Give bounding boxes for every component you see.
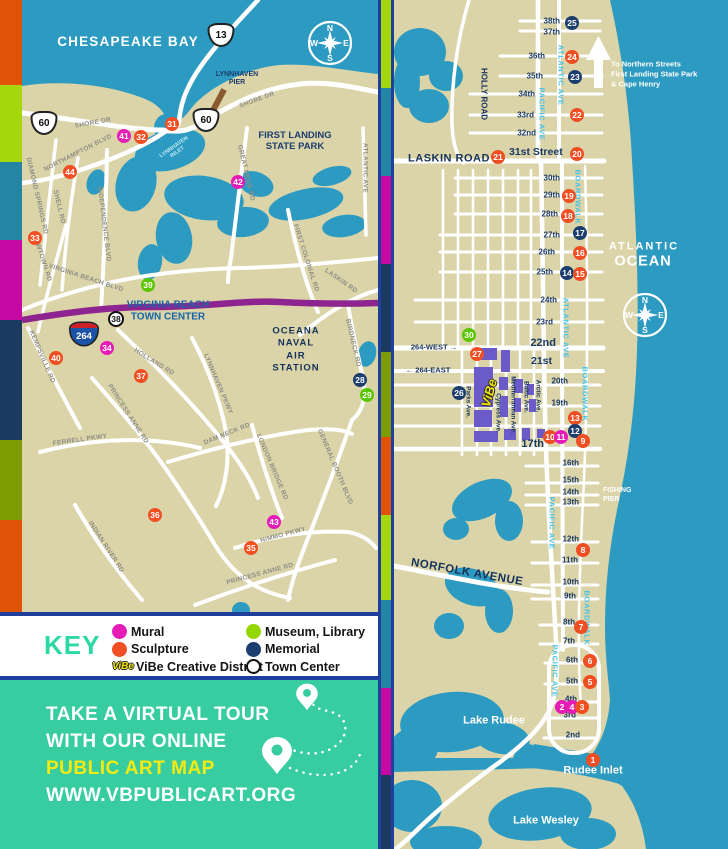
- divider-segment-1: [381, 0, 391, 88]
- public-art-map-poster: CHESAPEAKE BAYLYNNHAVEN PIERFIRST LANDIN…: [0, 0, 728, 849]
- left-stripe-segment-4: [0, 240, 22, 320]
- promo-line-1: TAKE A VIRTUAL TOUR: [46, 704, 269, 726]
- key-dot-mural: [112, 624, 127, 639]
- key-dot-museum-library: [246, 624, 261, 639]
- key-label-museum-library: Museum, Library: [265, 625, 365, 639]
- key-item-mural: Mural: [112, 623, 263, 641]
- divider-segment-7: [381, 515, 391, 600]
- left-stripe-segment-6: [0, 440, 22, 520]
- key-label-memorial: Memorial: [265, 642, 320, 656]
- divider-segment-8: [381, 600, 391, 688]
- map-pin-icon: [262, 737, 292, 774]
- key-item-museum-library: Museum, Library: [246, 623, 365, 641]
- promo-line-2: WITH OUR ONLINE: [46, 731, 227, 753]
- key-label-sculpture: Sculpture: [131, 642, 189, 656]
- key-item-memorial: Memorial: [246, 641, 365, 659]
- left-stripe-segment-3: [0, 162, 22, 240]
- divider-segment-4: [381, 264, 391, 352]
- promo-line-4: WWW.VBPUBLICART.ORG: [46, 785, 296, 807]
- key-item-sculpture: Sculpture: [112, 641, 263, 659]
- key-label-vibe-creative-district: ViBe Creative District: [136, 660, 263, 674]
- key-column-1: MuralSculptureViBeViBe Creative District: [112, 623, 263, 676]
- divider-color-stripe: [378, 0, 394, 849]
- divider-segment-2: [381, 88, 391, 176]
- divider-segment-3: [381, 176, 391, 264]
- vibe-logo-icon: ViBe: [112, 661, 134, 672]
- key-label-town-center: Town Center: [265, 660, 340, 674]
- key-item-vibe-creative-district: ViBeViBe Creative District: [112, 658, 263, 676]
- divider-segment-5: [381, 352, 391, 437]
- promo-panel: TAKE A VIRTUAL TOURWITH OUR ONLINEPUBLIC…: [0, 680, 378, 849]
- left-stripe-segment-1: [0, 0, 22, 85]
- key-column-2: Museum, LibraryMemorialTown Center: [246, 623, 365, 676]
- key-dot-memorial: [246, 642, 261, 657]
- key-item-town-center: Town Center: [246, 658, 365, 676]
- left-map-shapes: [22, 0, 379, 618]
- divider-segment-6: [381, 437, 391, 515]
- promo-line-3: PUBLIC ART MAP: [46, 758, 215, 780]
- map-pin-icon-small: [296, 684, 318, 711]
- map-key-panel: KEY MuralSculptureViBeViBe Creative Dist…: [0, 612, 378, 680]
- divider-segment-10: [381, 775, 391, 849]
- town-center-ring-icon: [246, 659, 261, 674]
- right-map-shapes: [382, 0, 728, 849]
- key-title: KEY: [44, 630, 100, 661]
- key-dot-sculpture: [112, 642, 127, 657]
- divider-segment-9: [381, 688, 391, 775]
- key-label-mural: Mural: [131, 625, 164, 639]
- left-stripe-segment-5: [0, 320, 22, 440]
- left-stripe-segment-7: [0, 520, 22, 612]
- left-stripe-segment-2: [0, 85, 22, 162]
- left-color-stripe: [0, 0, 22, 612]
